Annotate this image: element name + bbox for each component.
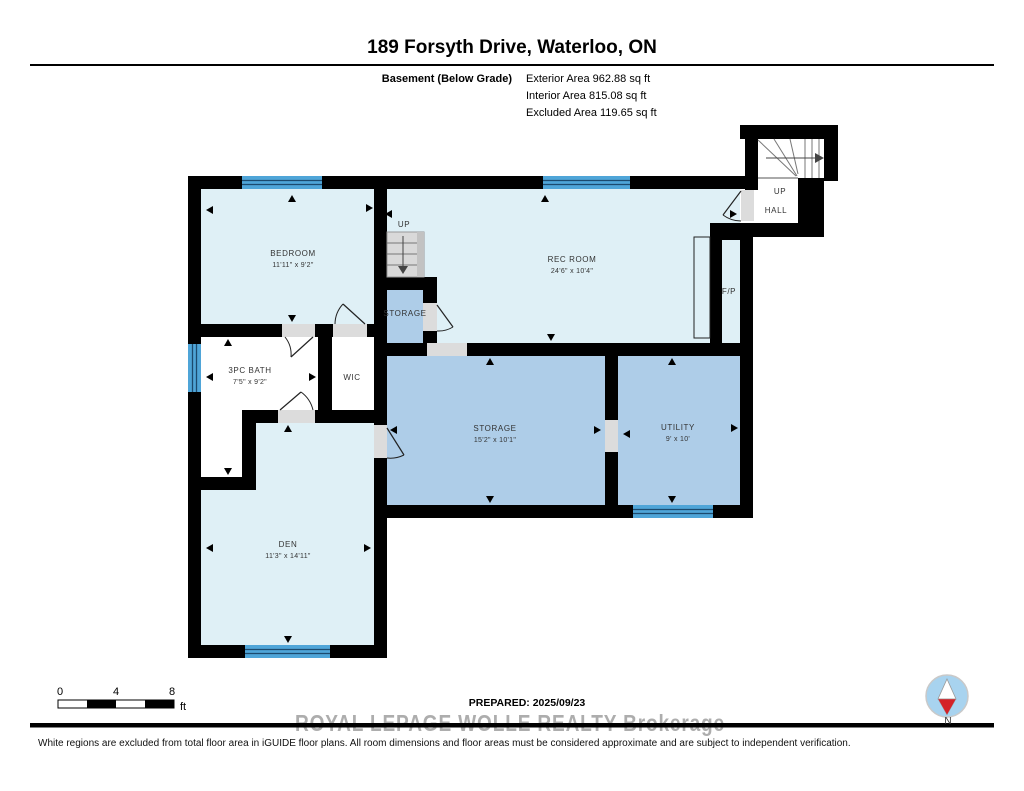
storage-label: STORAGE xyxy=(473,424,516,433)
scale-tick-0: 0 xyxy=(57,686,63,698)
window-bath-left xyxy=(188,344,201,392)
den-dims: 11'3" x 14'11" xyxy=(265,553,311,560)
window-rec-top xyxy=(543,176,630,189)
door-bedroom-bath xyxy=(282,324,315,337)
stairs-up-label: UP xyxy=(398,220,410,229)
door-den-bath xyxy=(278,410,315,423)
scale-unit: ft xyxy=(180,701,186,713)
storage-small-label: STORAGE xyxy=(383,309,426,318)
room-den xyxy=(256,423,374,645)
footer-rule xyxy=(30,723,994,728)
scale-tick-8: 8 xyxy=(169,686,175,698)
window-den-bottom xyxy=(245,645,330,658)
room-rec-room xyxy=(387,189,740,343)
den-label: DEN xyxy=(279,540,298,549)
bath-dims: 7'5" x 9'2" xyxy=(233,379,267,386)
excluded-area: Excluded Area 119.65 sq ft xyxy=(526,107,657,119)
window-bedroom-top xyxy=(242,176,322,189)
storage-dims: 15'2" x 10'1" xyxy=(474,437,517,444)
rec-room-dims: 24'6" x 10'4" xyxy=(551,268,594,275)
floorplan-page: 189 Forsyth Drive, Waterloo, ON Basement… xyxy=(0,0,1024,791)
utility-label: UTILITY xyxy=(661,423,695,432)
fireplace-label: F/P xyxy=(722,287,736,296)
room-den-left xyxy=(201,490,256,645)
floorplan-svg: 189 Forsyth Drive, Waterloo, ON Basement… xyxy=(0,0,1024,791)
scale-tick-4: 4 xyxy=(113,686,119,698)
bedroom-label: BEDROOM xyxy=(270,249,316,258)
exterior-area: Exterior Area 962.88 sq ft xyxy=(526,73,650,85)
door-rec-hall xyxy=(741,190,754,221)
opening-storage-utility xyxy=(605,420,618,452)
opening-rec-storage xyxy=(427,343,467,356)
door-den-storage xyxy=(374,425,387,458)
disclaimer-text: White regions are excluded from total fl… xyxy=(38,738,851,749)
scale-bar: 0 4 8 ft xyxy=(57,686,186,713)
page-title: 189 Forsyth Drive, Waterloo, ON xyxy=(367,37,657,58)
north-label: N xyxy=(944,716,951,727)
entry-up-label: UP xyxy=(774,187,786,196)
entry-hall-label: HALL xyxy=(765,206,787,215)
compass-icon: N xyxy=(926,675,968,727)
header-rule xyxy=(30,64,994,66)
rec-room-label: REC ROOM xyxy=(548,255,597,264)
utility-dims: 9' x 10' xyxy=(666,436,690,443)
stairs-entry xyxy=(758,139,824,178)
bath-label: 3PC BATH xyxy=(228,366,271,375)
prepared-date: PREPARED: 2025/09/23 xyxy=(469,697,586,709)
window-utility-bottom xyxy=(633,505,713,518)
wic-label: WIC xyxy=(343,373,360,382)
door-wic xyxy=(333,324,367,337)
stairs-middle xyxy=(387,232,424,277)
floor-label: Basement (Below Grade) xyxy=(382,73,513,85)
bedroom-dims: 11'11" x 9'2" xyxy=(272,262,313,269)
interior-area: Interior Area 815.08 sq ft xyxy=(526,90,646,102)
